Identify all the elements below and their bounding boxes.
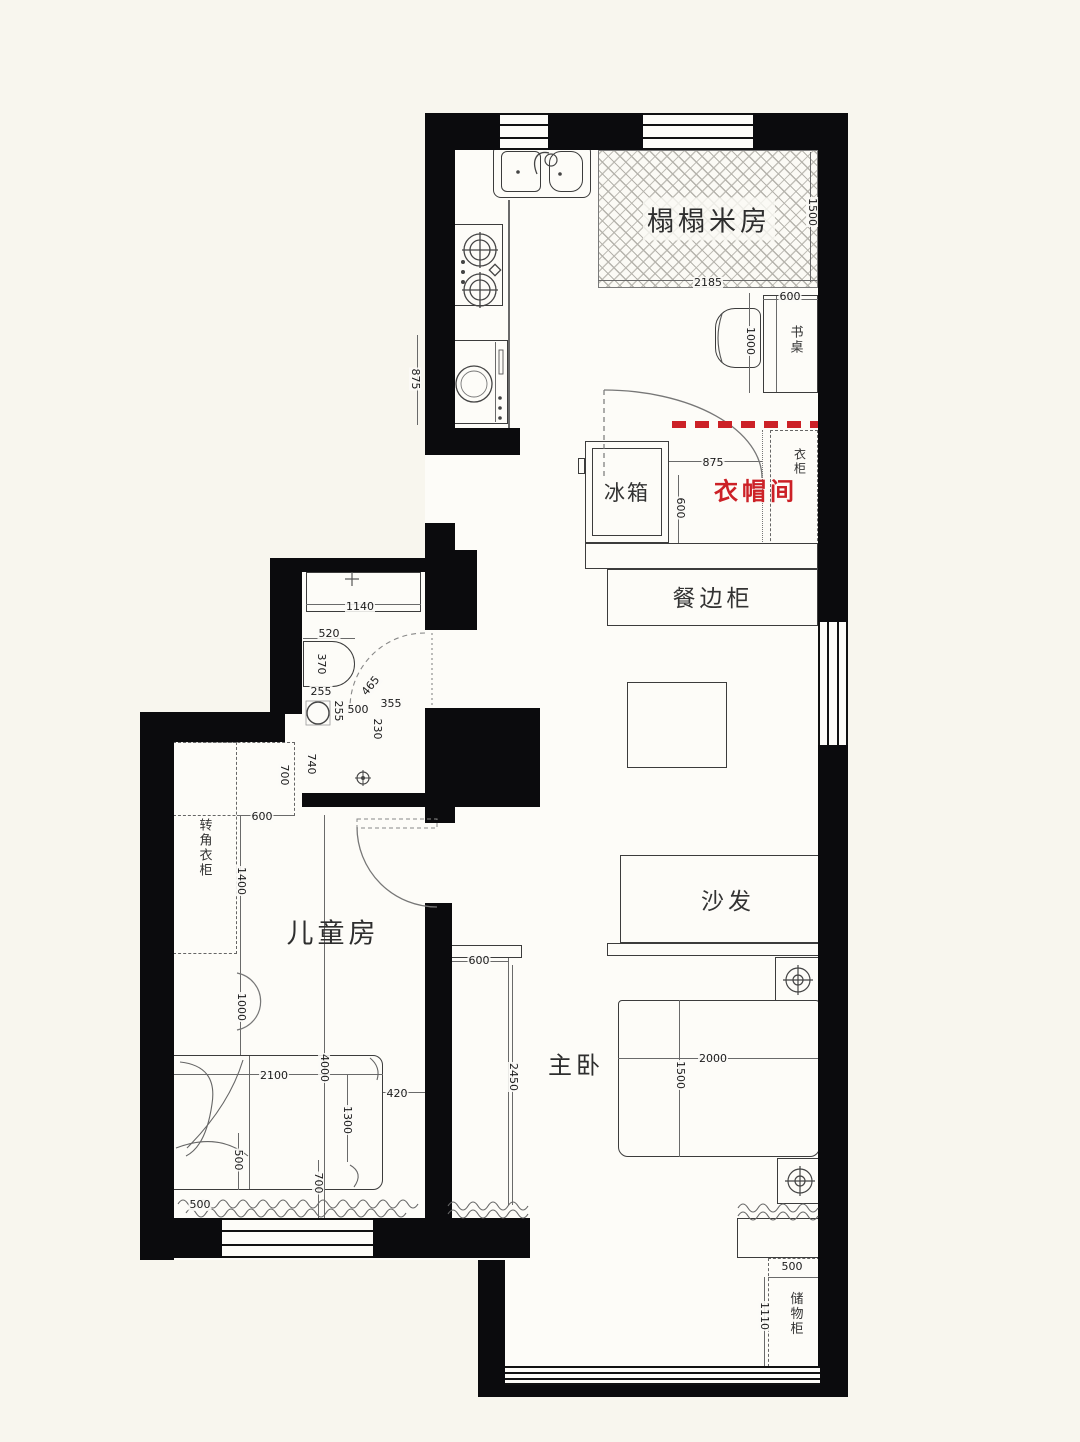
desk-label: 书桌 [786, 325, 805, 355]
dimension-label: 740 [305, 753, 317, 776]
fridge-label: 冰箱 [604, 477, 650, 507]
window-top-small [500, 113, 548, 150]
wall-right-upper [818, 148, 848, 622]
wall-top [425, 113, 848, 150]
wall-children-left [140, 712, 174, 1260]
dimension-label: 255 [310, 686, 333, 698]
dimension-label: 2185 [693, 277, 723, 289]
window-right [818, 622, 848, 745]
dimension-label: 600 [674, 497, 686, 520]
dimension-label: 2000 [698, 1053, 728, 1065]
desk-inner-line [776, 296, 777, 392]
room-label-cloakroom: 衣帽间 [714, 472, 798, 507]
corner-wardrobe-label: 转角衣柜 [195, 818, 214, 878]
master-bed [618, 1000, 820, 1157]
dimension-label: 1400 [235, 866, 247, 896]
dimension-label: 1000 [744, 326, 756, 356]
nightstand-top [775, 957, 821, 1003]
washing-machine [450, 340, 508, 424]
floor-plan: 榻榻米房 书桌 衣柜 衣帽间 冰箱 餐边柜 转角衣柜 儿童房 沙发 主 [0, 0, 1080, 1442]
washer-panel-line [495, 342, 496, 422]
dimension-label: 875 [702, 457, 725, 469]
wall-master-bottom [478, 1383, 848, 1397]
sink-basin-right [549, 151, 583, 192]
dimension-label: 500 [781, 1261, 804, 1273]
wall-bath-left [270, 558, 302, 714]
dim-line-4000 [324, 815, 325, 1218]
living-table [627, 682, 727, 768]
children-bed-line [249, 1056, 250, 1189]
dimension-label: 4000 [318, 1053, 330, 1083]
wall-children-bottom-right [373, 1218, 530, 1258]
kitchen-counter-edge [508, 200, 510, 428]
dimension-label: 520 [318, 628, 341, 640]
dimension-label: 370 [315, 653, 327, 676]
dimension-label: 500 [189, 1199, 212, 1211]
wall-master-left [478, 1260, 505, 1397]
sofa-label: 沙发 [701, 882, 755, 916]
dimension-label: 1500 [806, 197, 818, 227]
dimension-label: 2100 [259, 1070, 289, 1082]
exterior-patch-topleft [140, 558, 270, 712]
dimension-label: 500 [232, 1149, 244, 1172]
storage-cabinet-label: 储物柜 [786, 1292, 805, 1337]
dimension-label: 1140 [345, 601, 375, 613]
wall-right-lower [818, 745, 848, 1397]
sofa-front-shelf [607, 943, 820, 956]
dimension-label: 1000 [235, 992, 247, 1022]
dimension-label: 255 [332, 700, 344, 723]
dim-line-500s [768, 1277, 820, 1278]
room-label-tatami: 榻榻米房 [643, 198, 775, 241]
dimension-label: 500 [347, 704, 370, 716]
dimension-label: 1500 [674, 1060, 686, 1090]
bed-foot-cabinet [737, 1218, 820, 1258]
dimension-label: 600 [779, 291, 802, 303]
wall-hall-chunk [452, 708, 540, 807]
wall-divider [425, 903, 452, 1218]
window-children-bottom [222, 1218, 373, 1258]
gas-stove [453, 224, 503, 306]
sideboard-label: 餐边柜 [673, 579, 754, 613]
wall-children-bottom-left [140, 1218, 222, 1258]
wall-kitchen-left [425, 150, 455, 428]
window-top-wide [643, 113, 753, 150]
dimension-label: 600 [251, 811, 274, 823]
wall-bath-bottom [302, 793, 460, 807]
dimension-label: 420 [386, 1088, 409, 1100]
wall-kitchen-stub [425, 428, 520, 455]
dimension-label: 1300 [341, 1105, 353, 1135]
fridge-handle [578, 458, 585, 474]
dimension-label: 875 [409, 368, 421, 391]
exterior-patch-bottomleft [425, 1260, 478, 1397]
dimension-label: 230 [371, 718, 383, 741]
dimension-label: 355 [380, 698, 403, 710]
dimension-label: 1110 [758, 1301, 770, 1331]
room-label-master: 主卧 [548, 1046, 604, 1081]
window-master-bottom [505, 1366, 820, 1385]
bathtub [303, 641, 355, 687]
entry-counter [585, 543, 818, 569]
cloakroom-boundary-dashed [672, 421, 818, 428]
dimension-label: 600 [468, 955, 491, 967]
nightstand-bottom [777, 1158, 823, 1204]
dimension-label: 700 [312, 1172, 324, 1195]
sink-basin-left [501, 151, 541, 192]
dimension-label: 700 [278, 764, 290, 787]
room-label-children: 儿童房 [287, 912, 380, 951]
dimension-label: 2450 [507, 1062, 519, 1092]
